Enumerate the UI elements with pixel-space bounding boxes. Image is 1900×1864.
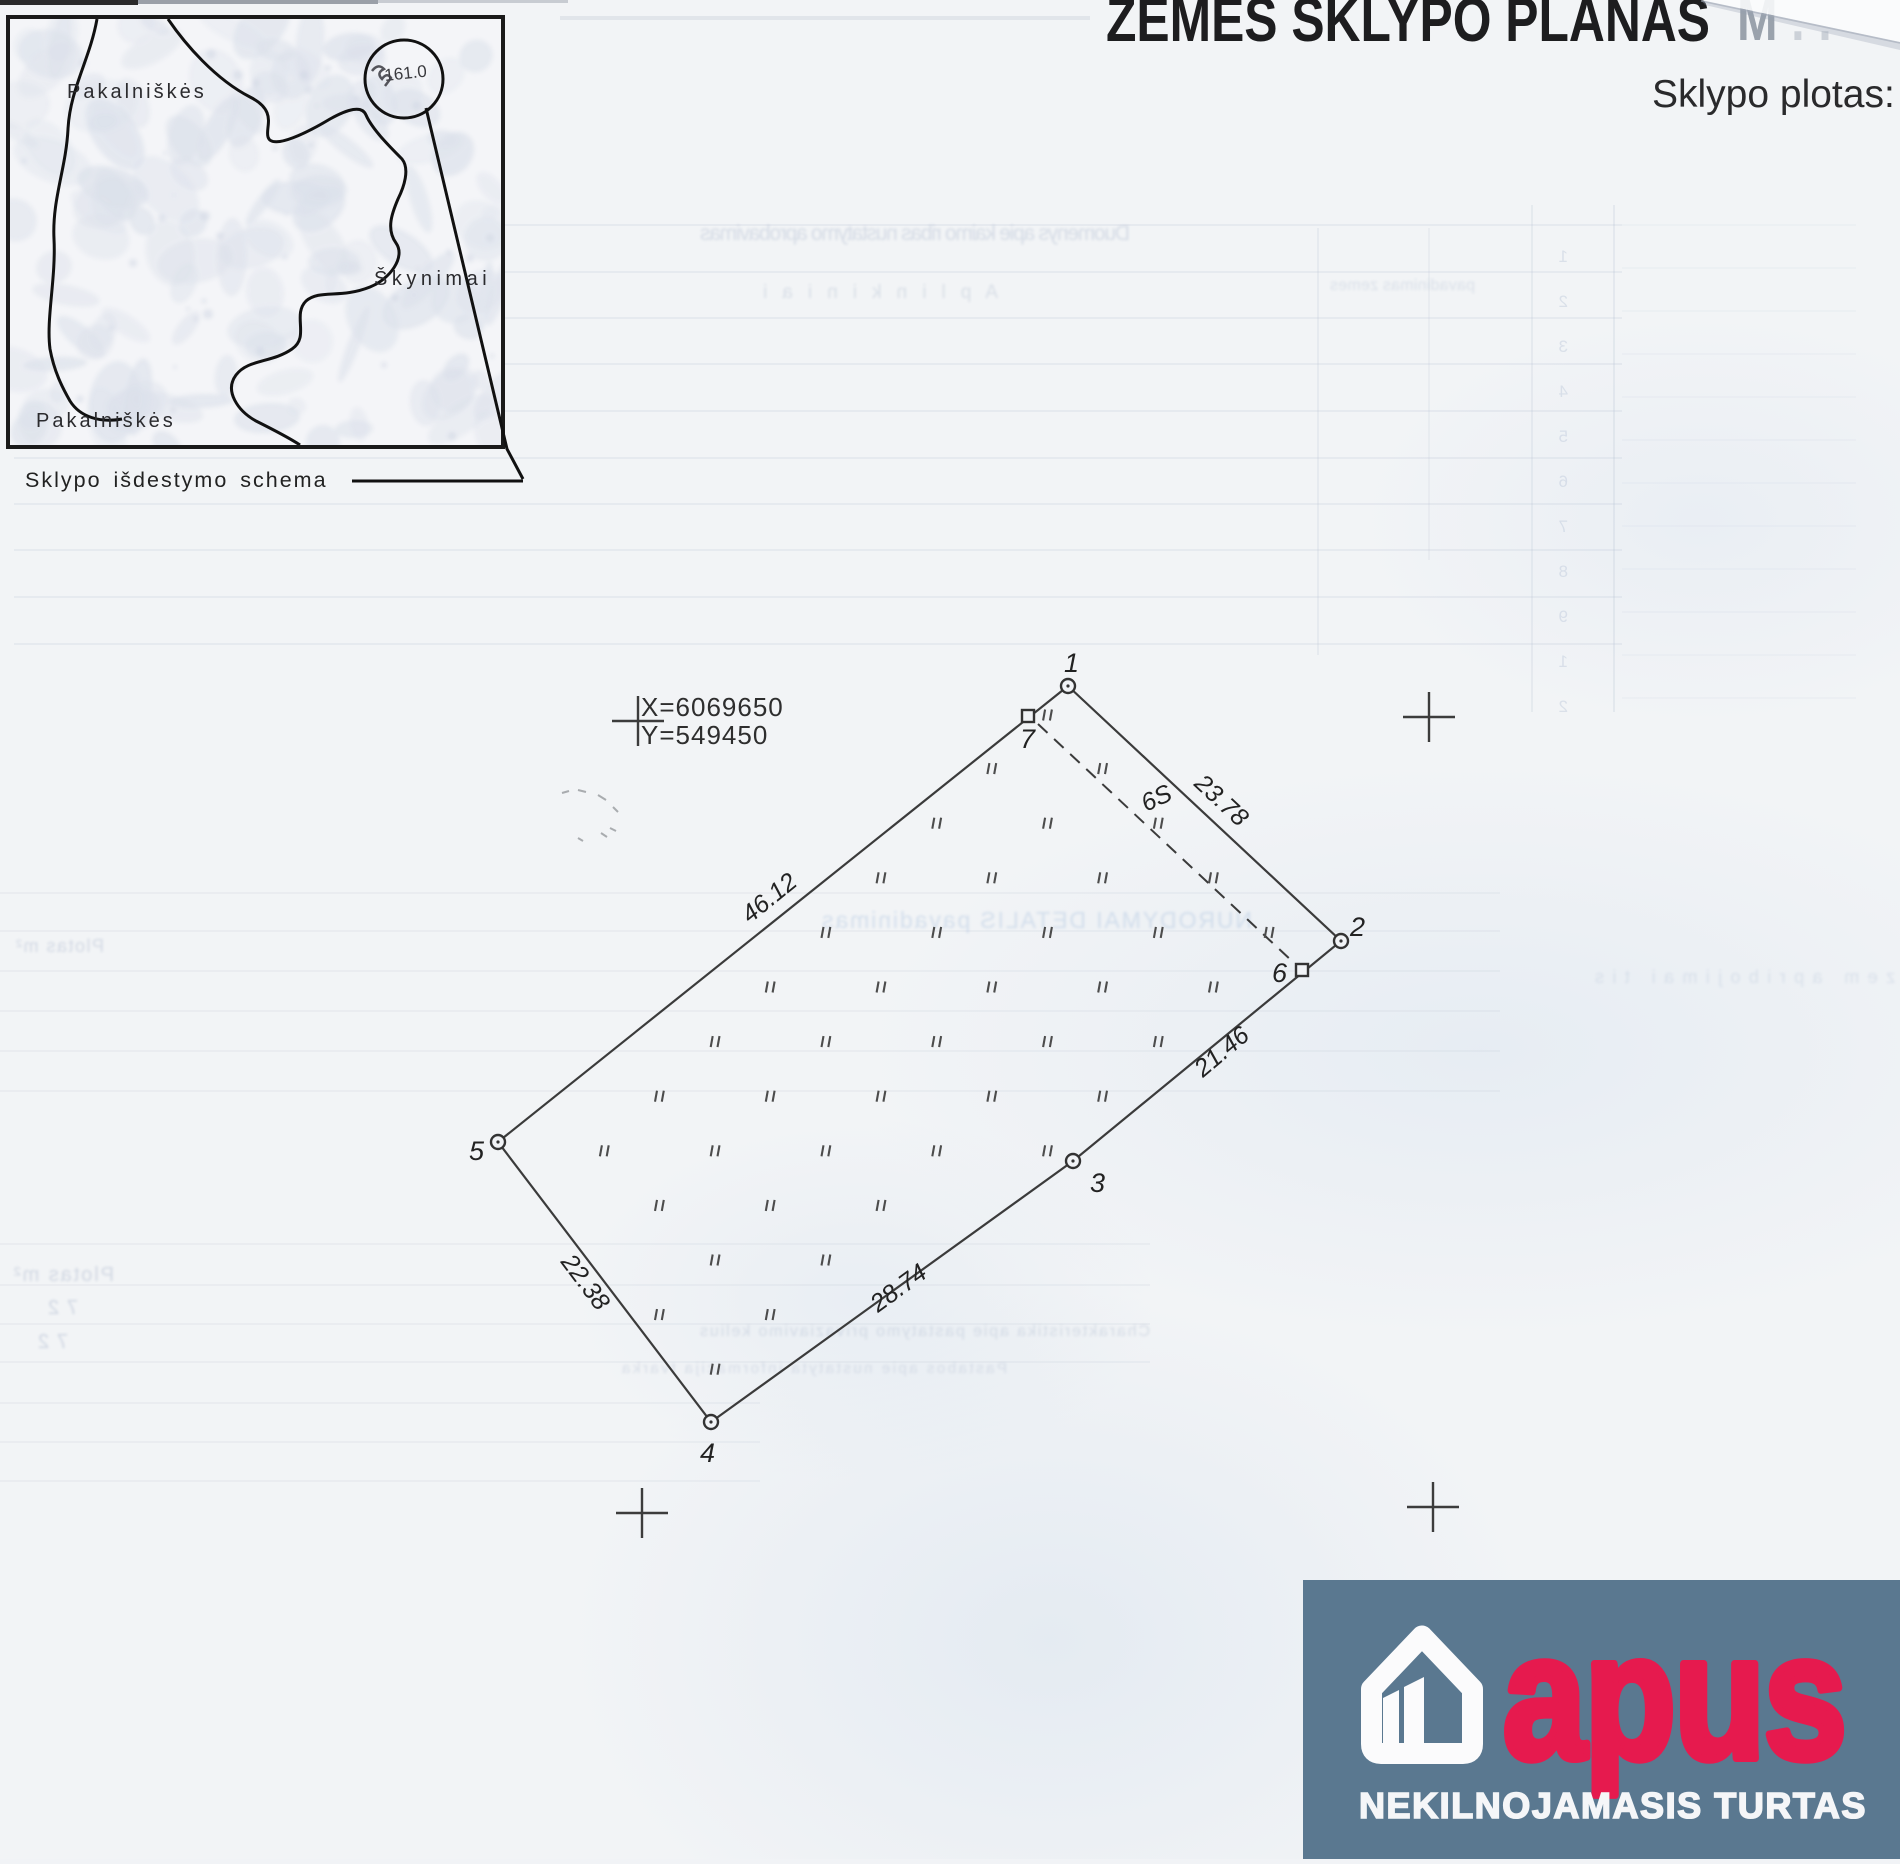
svg-text:4: 4 [700, 1438, 715, 1468]
svg-text:NEKILNOJAMASIS TURTAS: NEKILNOJAMASIS TURTAS [1359, 1785, 1867, 1826]
svg-text:Y=549450: Y=549450 [641, 720, 768, 750]
svg-text:5: 5 [469, 1136, 485, 1166]
svg-text:7: 7 [1020, 724, 1036, 754]
svg-text:6S: 6S [1137, 779, 1177, 817]
svg-text:3: 3 [1090, 1168, 1105, 1198]
svg-text:22.38: 22.38 [555, 1248, 616, 1316]
svg-text:6: 6 [1272, 958, 1288, 988]
svg-text:2: 2 [1349, 912, 1365, 942]
svg-text:21.46: 21.46 [1188, 1021, 1255, 1083]
svg-text:1: 1 [1064, 648, 1079, 678]
svg-text:28.74: 28.74 [864, 1258, 932, 1318]
svg-text:X=6069650: X=6069650 [641, 692, 784, 722]
svg-text:46.12: 46.12 [736, 867, 802, 928]
svg-text:23.78: 23.78 [1188, 768, 1254, 832]
svg-text:apus: apus [1503, 1597, 1845, 1796]
